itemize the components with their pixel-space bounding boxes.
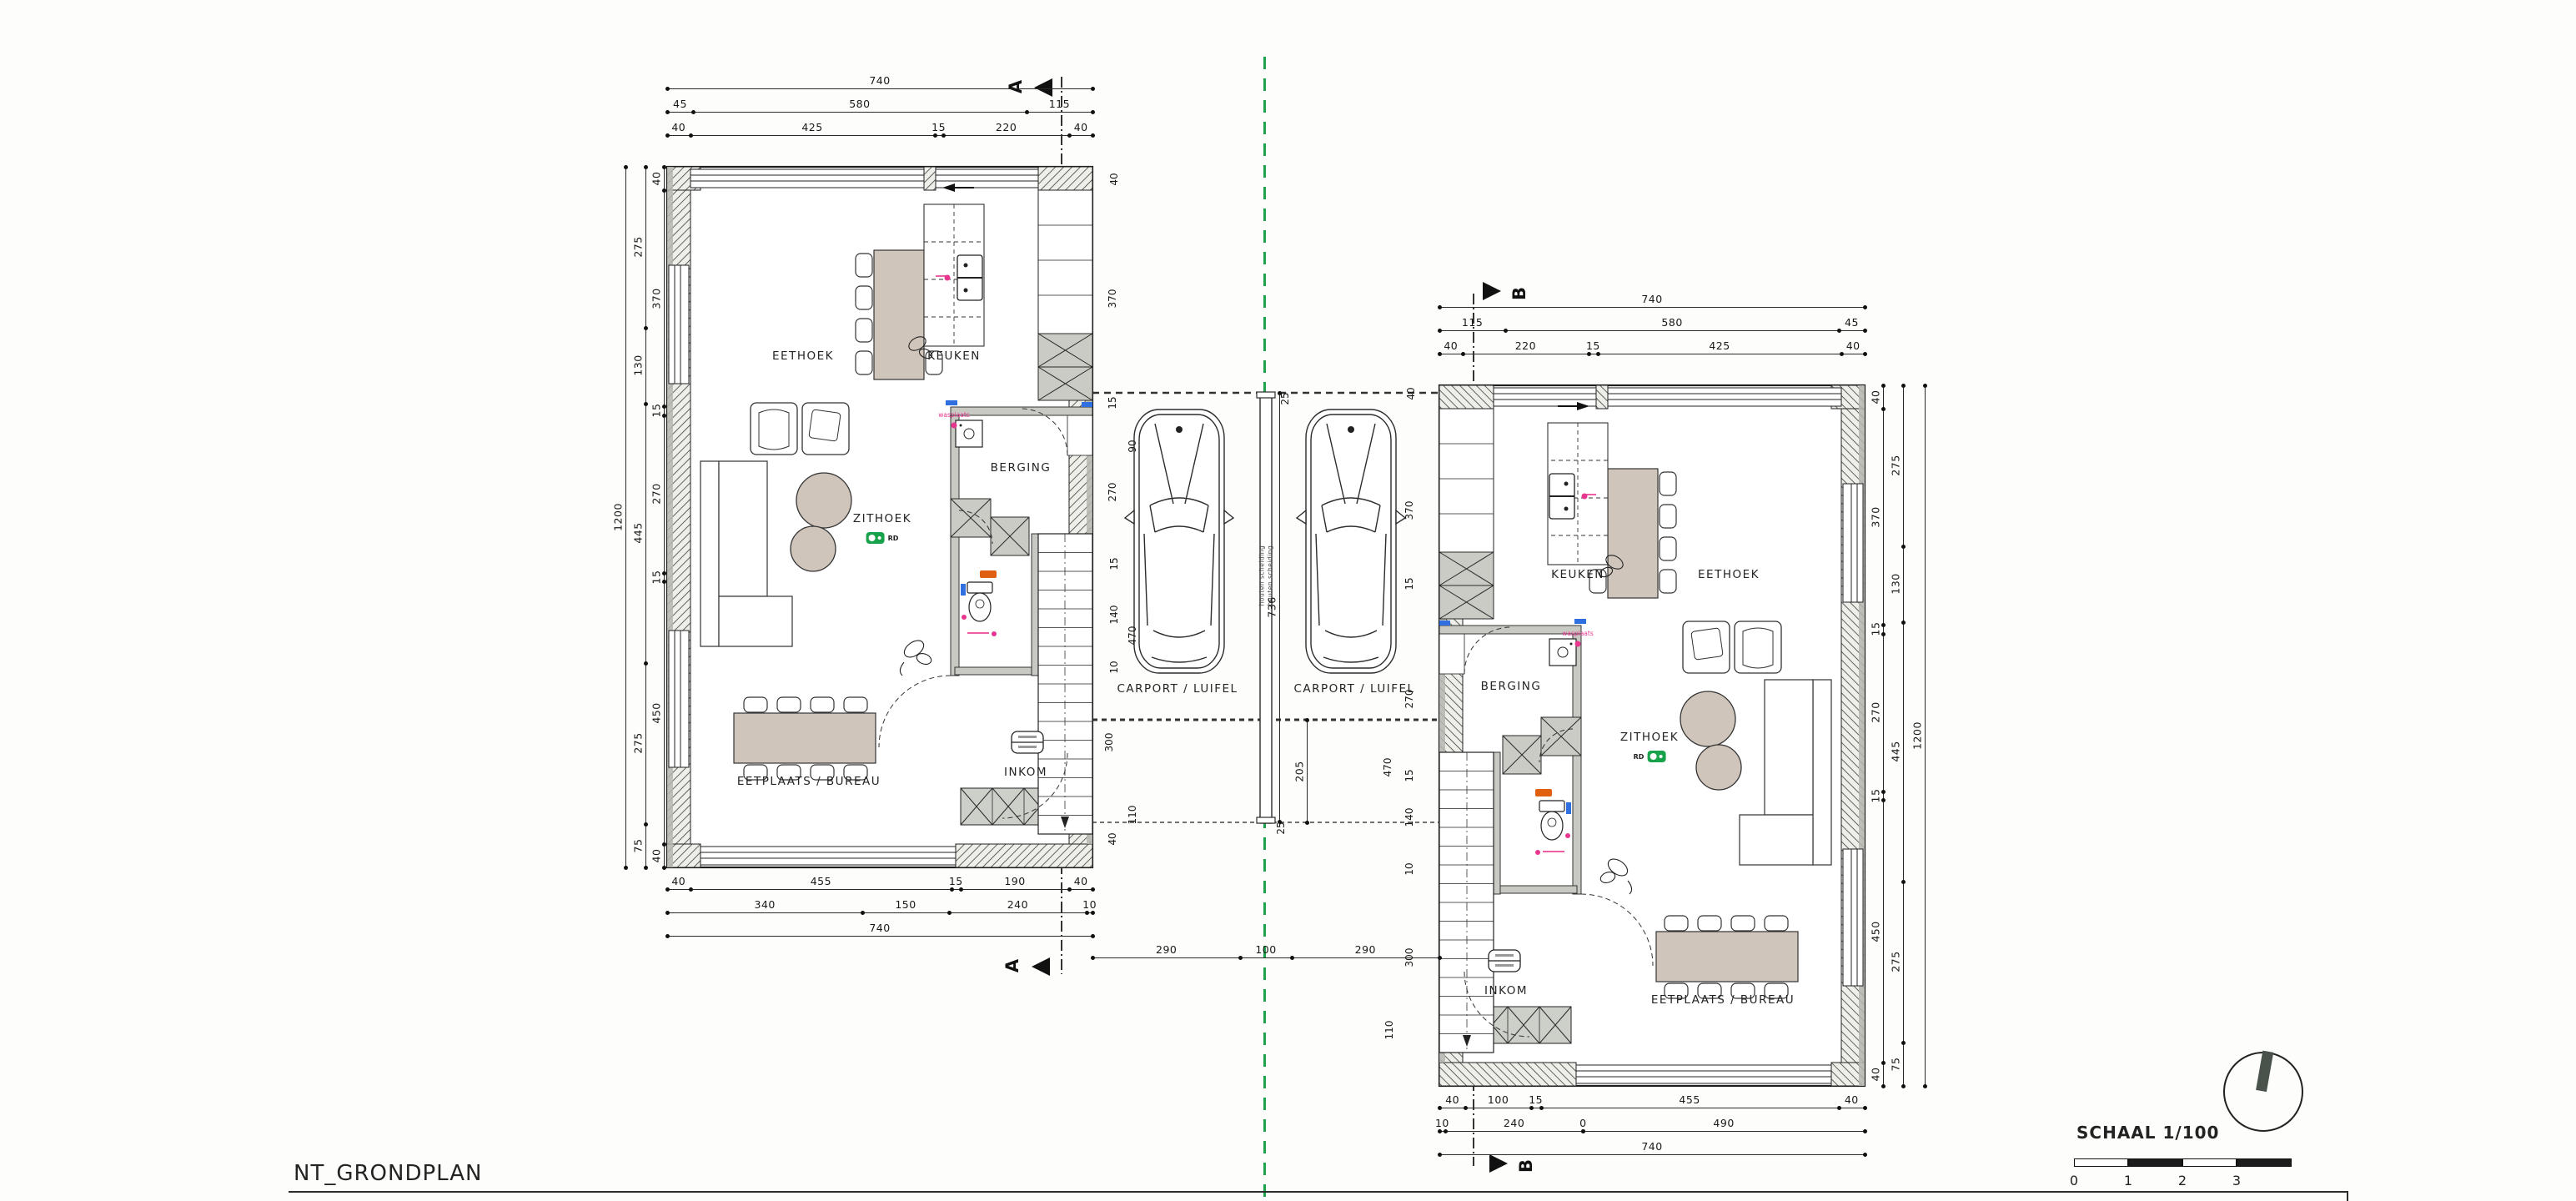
dim-chain: 404551519040 <box>667 889 1092 890</box>
room-label-zithoek-left: ZITHOEK <box>853 512 911 525</box>
dim-value: 190 <box>1004 875 1025 887</box>
room-label-berging-right: BERGING <box>1481 680 1542 693</box>
dim-value: 15 <box>1870 788 1882 802</box>
dim-floating: 300 <box>1103 733 1115 752</box>
carport-label-left: CARPORT / LUIFEL <box>1117 682 1238 696</box>
wasplaats-label: wasplaats <box>938 411 970 419</box>
dim-floating: 270 <box>1403 690 1415 709</box>
section-arrow-b-top-icon <box>1483 282 1501 300</box>
wasplaats-label: wasplaats <box>1562 630 1594 637</box>
dim-floating: 110 <box>1127 806 1138 825</box>
dim-floating: 25 <box>1279 392 1291 405</box>
dim-floating: 40 <box>1108 173 1120 185</box>
dim-floating: 140 <box>1403 808 1415 827</box>
dim-value: 490 <box>1713 1117 1734 1129</box>
dim-floating: 15 <box>1403 577 1415 590</box>
dim-floating: 140 <box>1108 606 1120 625</box>
section-letter-a-top: A <box>1006 80 1026 93</box>
sheet-title: NT_GRONDPLAN <box>294 1161 482 1186</box>
dim-value: 115 <box>1462 316 1483 329</box>
sheet-border-corner <box>2347 1191 2348 1201</box>
dim-floating: 40 <box>1405 387 1417 399</box>
dim-value: 275 <box>632 237 645 258</box>
section-arrow-a-top-icon <box>1034 78 1052 97</box>
dim-value: 40 <box>1444 339 1458 352</box>
dim-value: 100 <box>1255 943 1276 956</box>
dim-floating: 110 <box>1383 1021 1395 1040</box>
dim-value: 40 <box>671 875 685 887</box>
room-label-inkom-left: INKOM <box>1004 766 1047 779</box>
dim-value: 240 <box>1007 898 1028 911</box>
room-label-inkom-right: INKOM <box>1484 984 1528 997</box>
scale-tick: 1 <box>2124 1173 2132 1188</box>
dim-floating: 300 <box>1403 948 1415 967</box>
dim-floating: 15 <box>1403 769 1415 781</box>
room-label-eethoek-left: EETHOEK <box>772 349 834 363</box>
dim-chain: 40370152701545040 <box>1883 385 1884 1086</box>
dim-chain: 45580115 <box>667 112 1092 113</box>
dim-value: 10 <box>1082 898 1097 911</box>
dim-floating: 10 <box>1108 661 1120 673</box>
dim-value: 40 <box>1870 1068 1882 1082</box>
dim-floating: 90 <box>1127 440 1138 452</box>
dim-value: 220 <box>996 121 1017 133</box>
dim-chain: 1200 <box>1925 385 1926 1086</box>
dim-value: 40 <box>650 172 663 186</box>
scale-tick: 3 <box>2232 1173 2241 1188</box>
dim-floating: 370 <box>1403 501 1415 520</box>
dim-value: 275 <box>1890 455 1902 476</box>
scale-label: SCHAAL 1/100 <box>2076 1123 2219 1143</box>
room-label-keuken-left: KEUKEN <box>927 349 981 363</box>
dim-value: 40 <box>671 121 685 133</box>
dim-value: 40 <box>650 849 663 863</box>
dim-value: 15 <box>1586 339 1600 352</box>
car-left <box>1125 410 1233 673</box>
scale-tick: 2 <box>2178 1173 2187 1188</box>
zithoek-tag-right: RD <box>1634 751 1666 762</box>
dim-value: 45 <box>673 98 687 110</box>
dim-chain: 102400490 <box>1439 1131 1865 1132</box>
dim-value: 425 <box>801 121 822 133</box>
green-dot-icon <box>866 532 885 544</box>
zithoek-tag-left: RD <box>866 532 899 544</box>
dim-value: 240 <box>1504 1117 1524 1129</box>
section-letter-a-bottom: A <box>1002 959 1022 972</box>
dim-floating: 470 <box>1127 626 1138 646</box>
dim-value: 740 <box>1641 293 1662 305</box>
room-label-keuken-right: KEUKEN <box>1551 568 1604 581</box>
room-label-eethoek-right: EETHOEK <box>1698 568 1760 581</box>
dim-value: 455 <box>811 875 831 887</box>
dim-value: 275 <box>1890 952 1902 972</box>
dim-chain: 27513044527575 <box>1903 385 1904 1086</box>
dim-chain: 736 <box>1279 393 1280 822</box>
dim-floating: 10 <box>1403 862 1415 875</box>
dim-value: 100 <box>1488 1093 1509 1106</box>
dim-value: 15 <box>650 570 663 584</box>
dim-value: 740 <box>869 74 890 87</box>
dim-value: 450 <box>650 702 663 723</box>
section-letter-b-top: B <box>1509 287 1529 300</box>
dim-chain: 290100290 <box>1092 957 1439 958</box>
dim-value: 205 <box>1293 761 1306 781</box>
dim-value: 115 <box>1049 98 1070 110</box>
dim-chain: 740 <box>1439 307 1865 308</box>
dim-value: 40 <box>1445 1093 1459 1106</box>
dim-value: 290 <box>1355 943 1376 956</box>
dim-chain: 740 <box>1439 1154 1865 1155</box>
dim-value: 370 <box>650 288 663 309</box>
dim-value: 425 <box>1709 339 1730 352</box>
dim-value: 40 <box>1845 1093 1859 1106</box>
dim-value: 370 <box>1870 506 1882 527</box>
dim-value: 15 <box>1529 1093 1543 1106</box>
dim-value: 15 <box>931 121 946 133</box>
dim-value: 15 <box>949 875 963 887</box>
section-arrow-b-bottom-icon <box>1489 1154 1508 1173</box>
section-letter-b-bottom: B <box>1516 1159 1536 1173</box>
dim-value: 455 <box>1679 1093 1700 1106</box>
dim-value: 580 <box>1661 316 1682 329</box>
dim-value: 270 <box>1870 701 1882 722</box>
room-label-eetplaats-left: EETPLAATS / BUREAU <box>737 775 881 788</box>
dim-chain: 205 <box>1307 720 1308 822</box>
dim-value: 40 <box>1074 875 1088 887</box>
car-right <box>1297 410 1405 673</box>
dim-floating: 370 <box>1107 289 1118 309</box>
dim-floating: 470 <box>1382 758 1393 777</box>
dim-chain: 404251522040 <box>667 135 1092 136</box>
dim-value: 736 <box>1266 596 1278 617</box>
divider-label-1: houten scheiding <box>1258 545 1266 606</box>
dim-value: 275 <box>632 733 645 754</box>
green-dot-icon <box>1647 751 1665 762</box>
dim-value: 580 <box>849 98 870 110</box>
dim-value: 290 <box>1156 943 1177 956</box>
room-label-zithoek-right: ZITHOEK <box>1620 731 1679 744</box>
room-label-berging-left: BERGING <box>991 461 1052 475</box>
dim-value: 740 <box>869 922 890 934</box>
dim-floating: 25 <box>1275 822 1287 834</box>
dim-value: 40 <box>1074 121 1088 133</box>
dim-value: 270 <box>650 483 663 504</box>
room-label-eetplaats-right: EETPLAATS / BUREAU <box>1651 993 1795 1007</box>
dim-floating: 40 <box>1107 832 1118 845</box>
dim-value: 75 <box>1890 1057 1902 1071</box>
floorplan-sheet: houten scheiding houten scheiding A A B … <box>0 0 2576 1201</box>
dim-value: 45 <box>1845 316 1859 329</box>
dim-chain: 11558045 <box>1439 330 1865 331</box>
dim-value: 40 <box>1870 390 1882 405</box>
dim-chain: 1200 <box>625 167 626 867</box>
scale-tick: 0 <box>2070 1173 2078 1188</box>
dim-value: 130 <box>1890 573 1902 594</box>
dim-value: 220 <box>1515 339 1536 352</box>
dim-chain: 34015024010 <box>667 912 1092 913</box>
dim-value: 130 <box>632 354 645 375</box>
dim-value: 1200 <box>1911 721 1924 750</box>
dim-value: 10 <box>1435 1117 1449 1129</box>
dim-chain: 402201542540 <box>1439 354 1865 354</box>
dim-value: 15 <box>1870 622 1882 636</box>
dim-value: 75 <box>632 838 645 852</box>
dim-value: 450 <box>1870 921 1882 942</box>
dim-value: 15 <box>650 404 663 418</box>
dim-value: 40 <box>1846 339 1860 352</box>
sheet-border-bottom <box>289 1191 2348 1193</box>
dim-chain: 40370152701545040 <box>664 167 665 867</box>
section-arrow-a-bottom-icon <box>1032 957 1050 976</box>
dim-chain: 27513044527575 <box>645 167 646 867</box>
dim-value: 150 <box>895 898 916 911</box>
dim-floating: 15 <box>1108 557 1120 570</box>
dim-floating: 15 <box>1107 396 1118 409</box>
dim-value: 445 <box>632 523 645 544</box>
dim-value: 0 <box>1579 1117 1586 1129</box>
dim-chain: 740 <box>667 936 1092 937</box>
dim-chain: 740 <box>667 88 1092 89</box>
dim-chain: 401001545540 <box>1439 1108 1865 1108</box>
dim-value: 1200 <box>612 503 625 531</box>
dim-value: 445 <box>1890 741 1902 762</box>
dim-value: 340 <box>755 898 776 911</box>
carport-label-right: CARPORT / LUIFEL <box>1293 682 1414 696</box>
dim-floating: 270 <box>1107 483 1118 502</box>
dim-value: 740 <box>1641 1140 1662 1153</box>
